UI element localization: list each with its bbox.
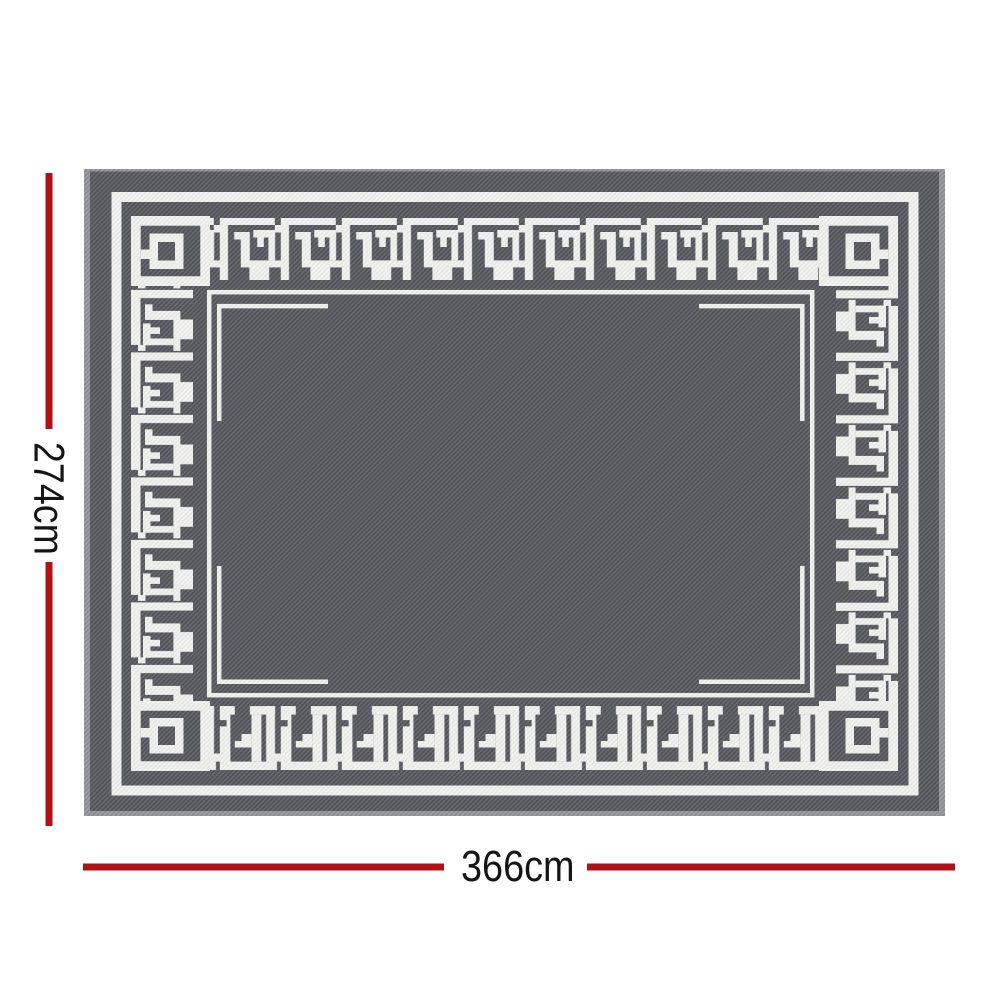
svg-text:366cm: 366cm — [461, 841, 575, 890]
svg-text:274cm: 274cm — [25, 442, 74, 555]
